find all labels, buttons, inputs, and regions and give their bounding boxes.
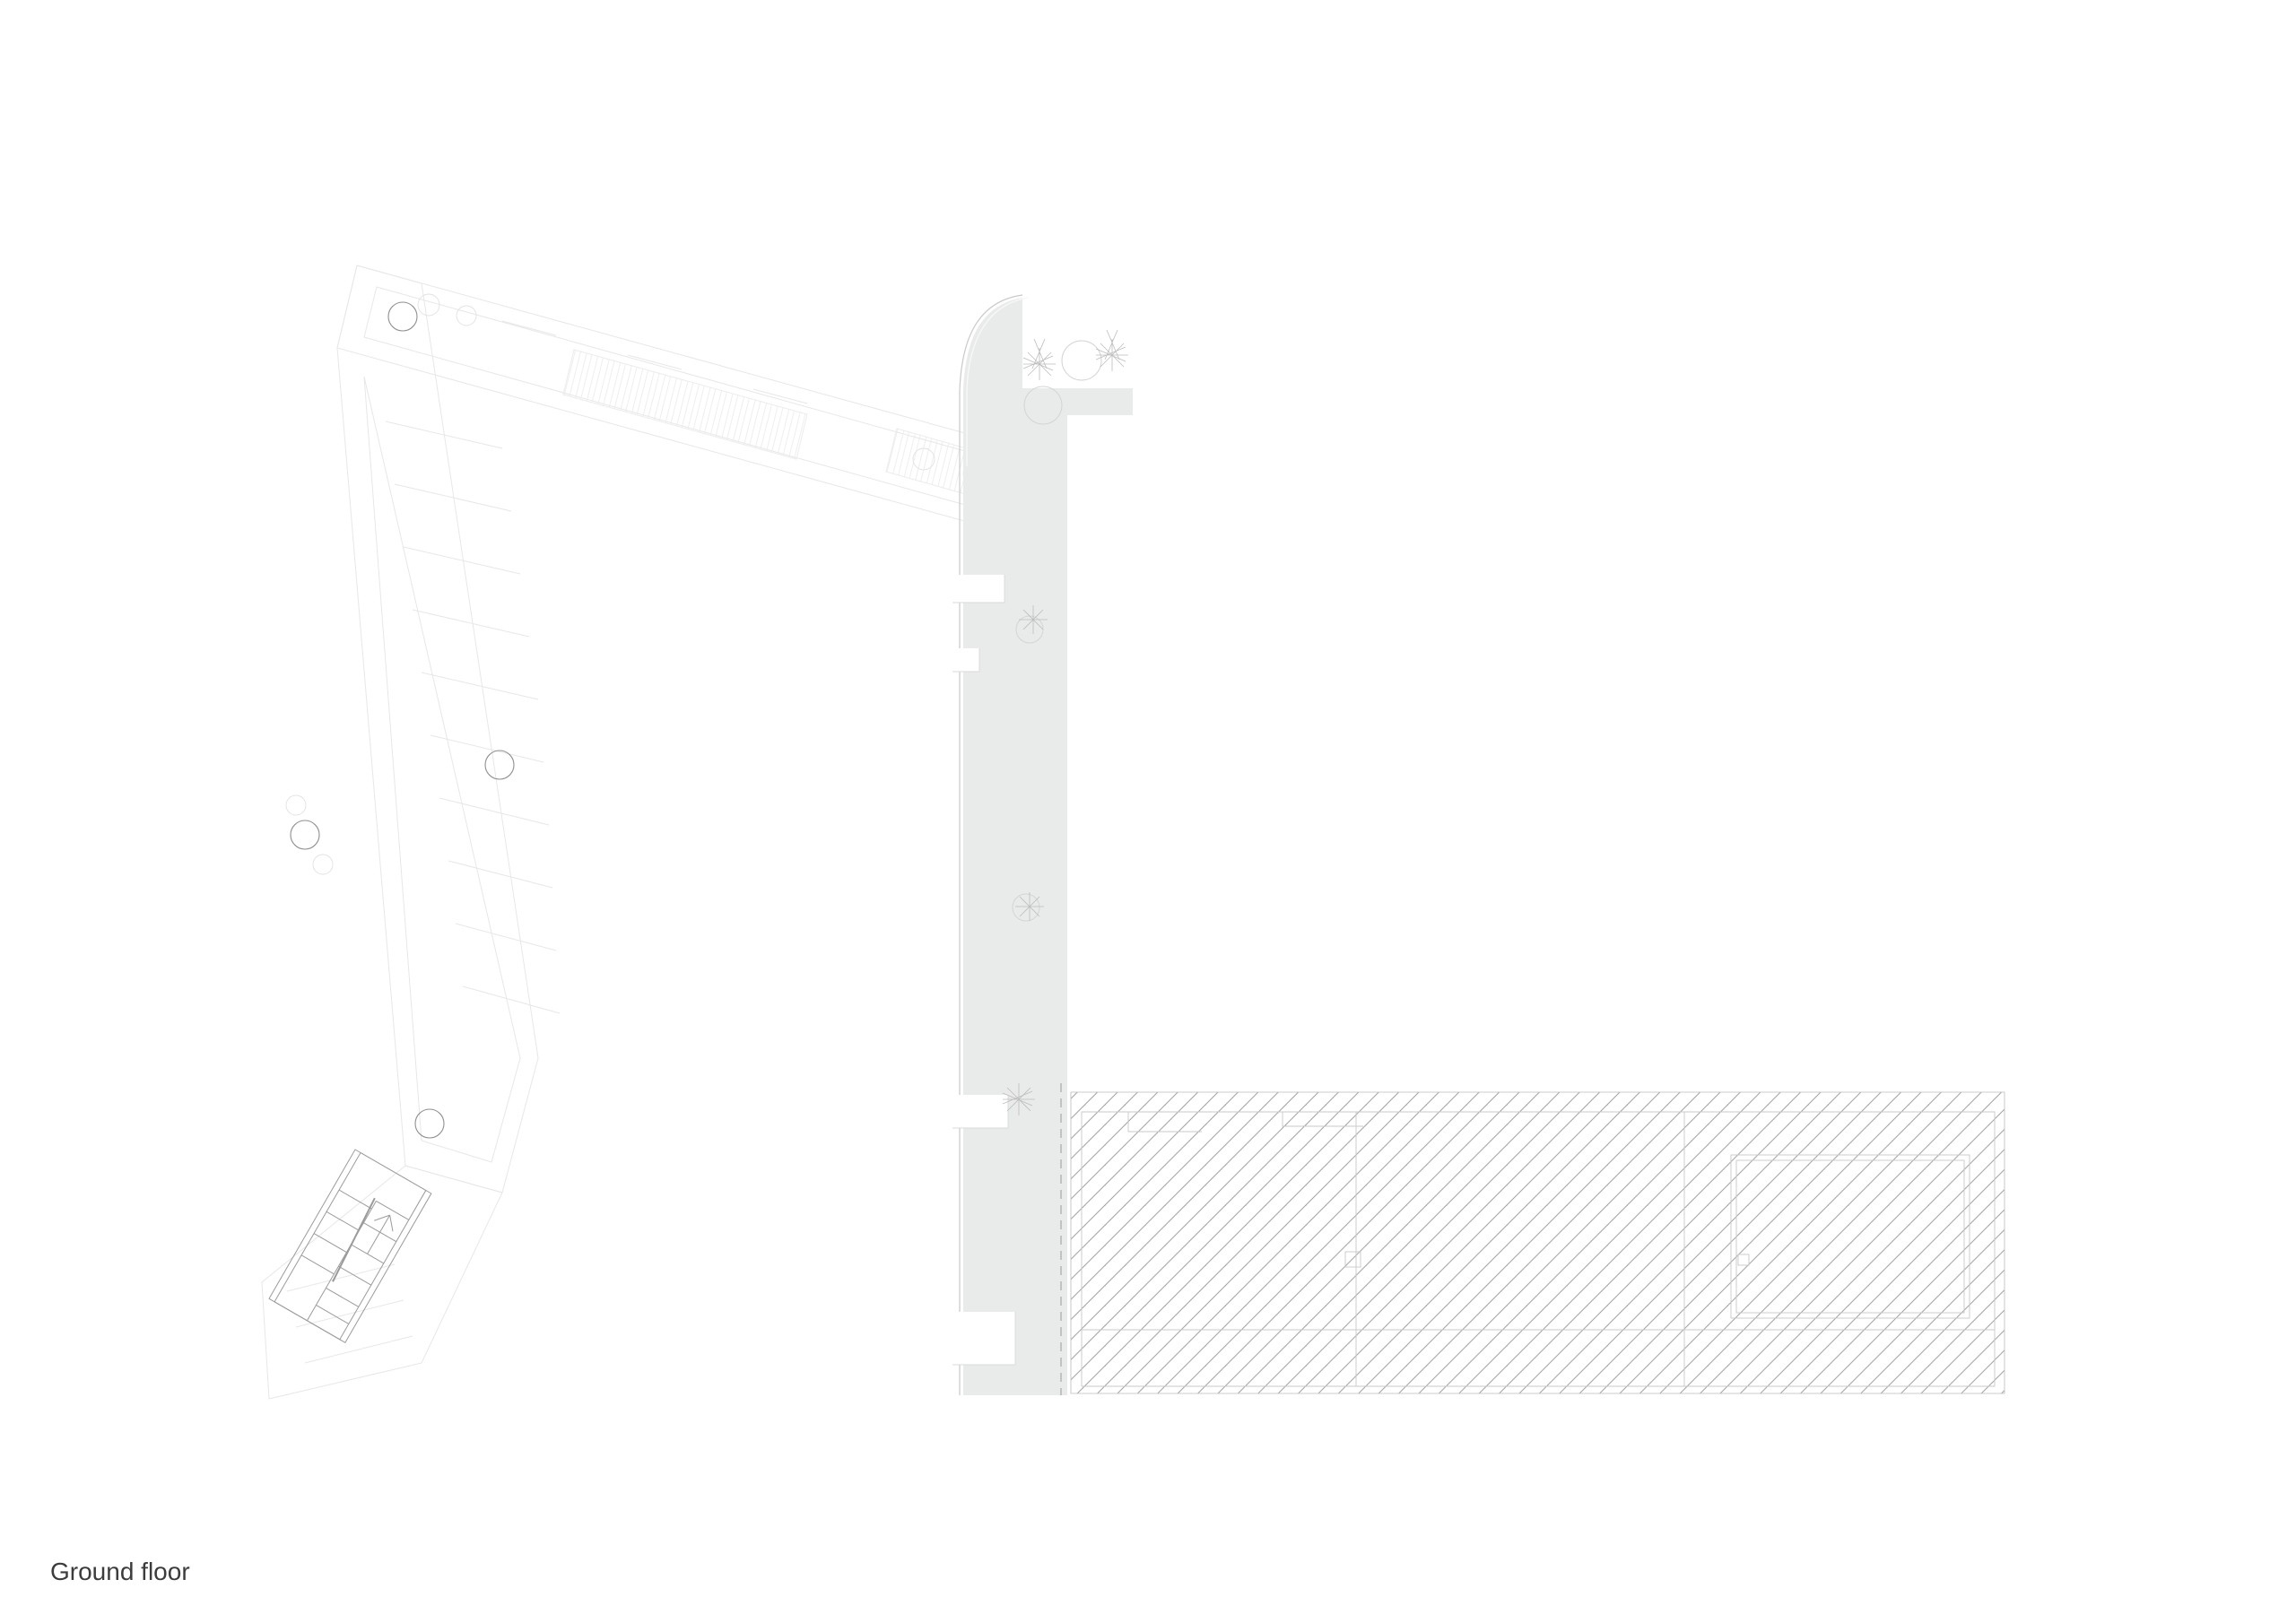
svg-text:Ground floor: Ground floor [50, 1558, 190, 1585]
